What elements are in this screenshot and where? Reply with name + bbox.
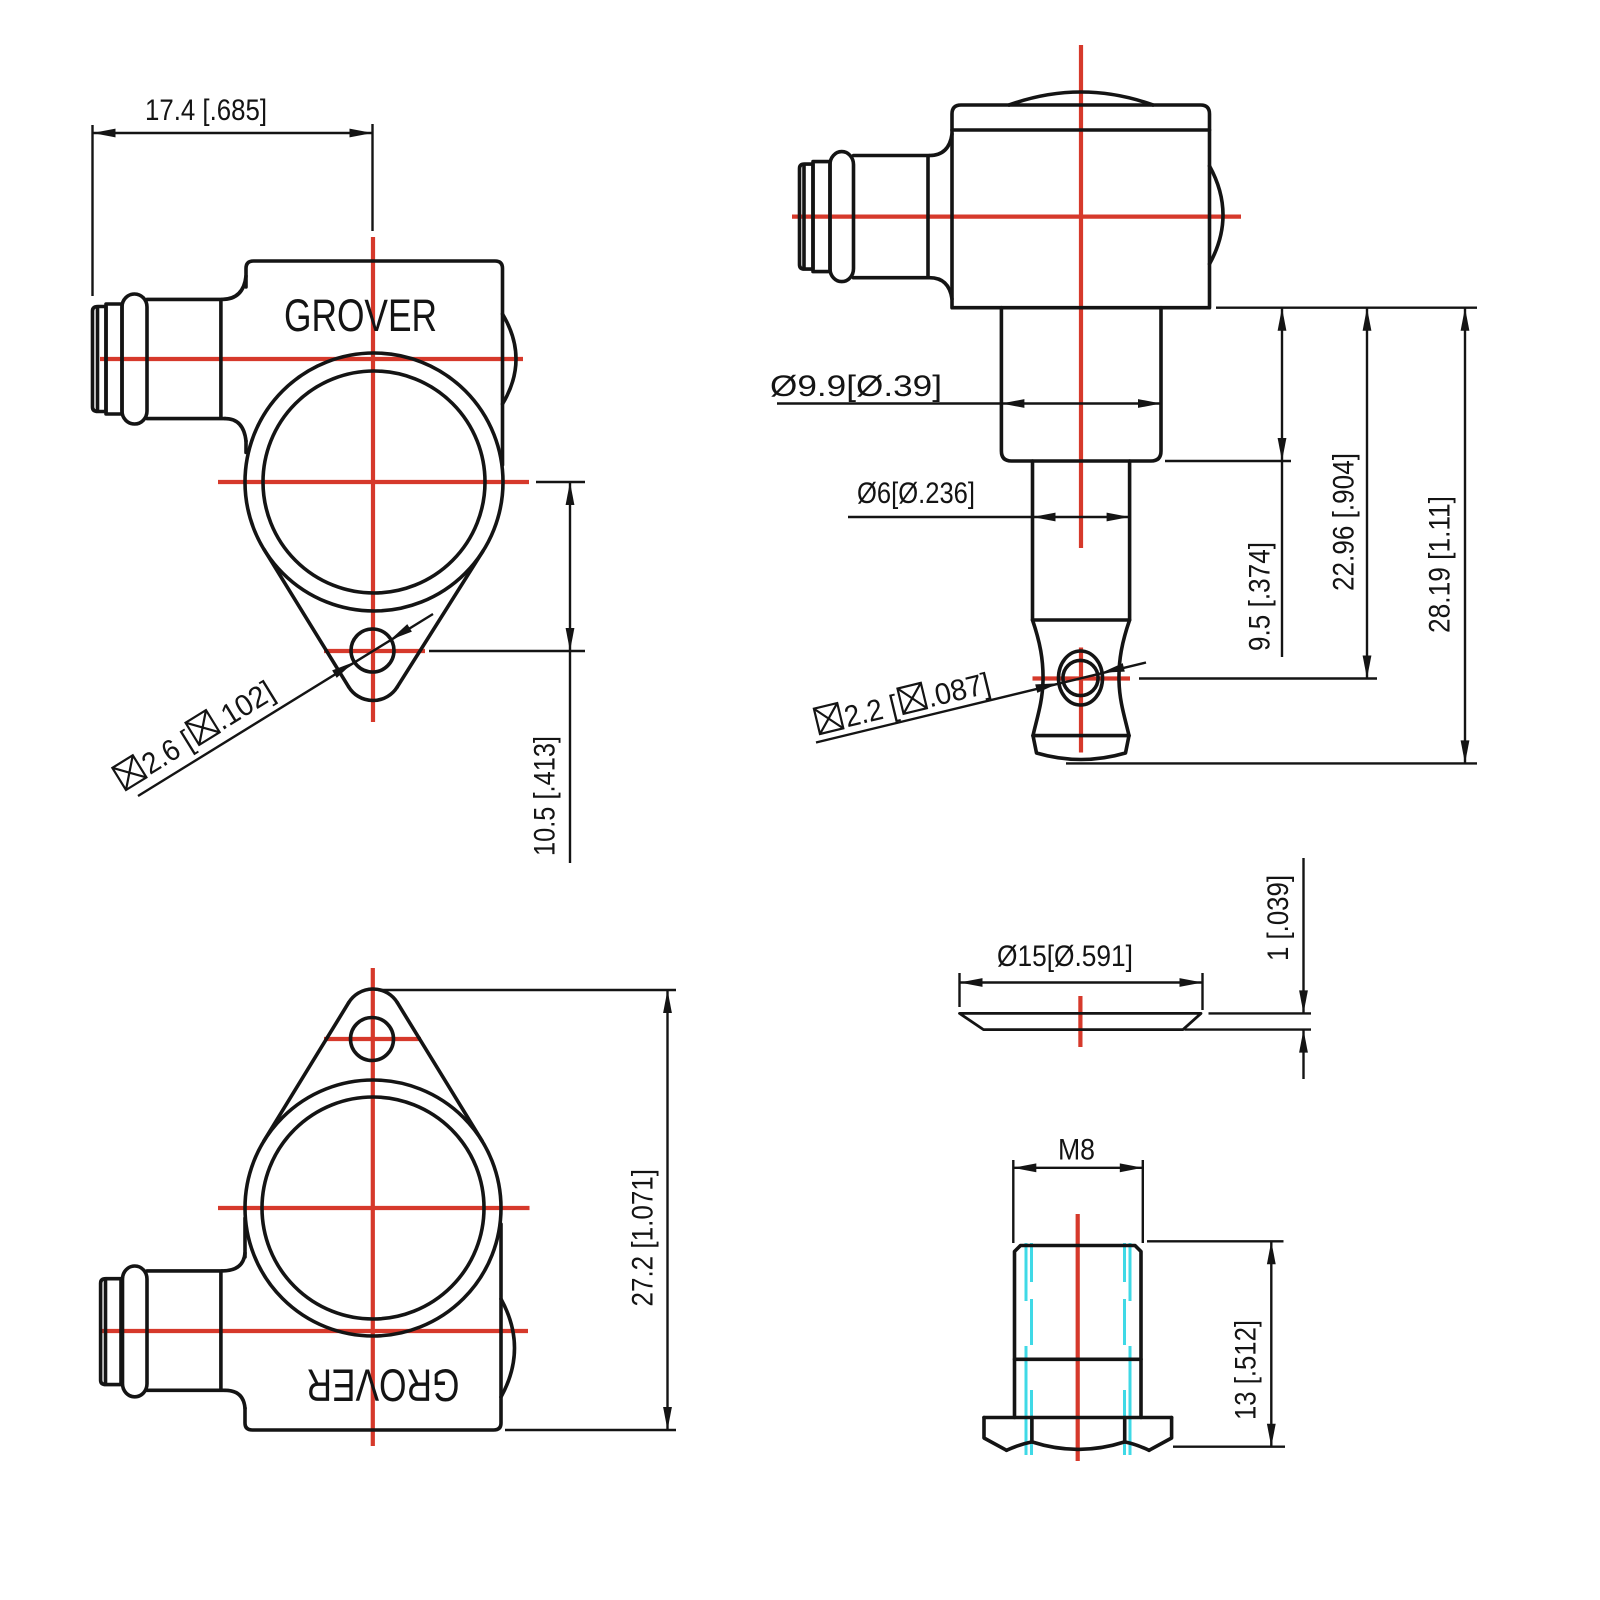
svg-text:13 [.512]: 13 [.512] xyxy=(1230,1320,1263,1420)
svg-text:Ø15[Ø.591]: Ø15[Ø.591] xyxy=(997,940,1133,973)
svg-text:9.5 [.374]: 9.5 [.374] xyxy=(1244,542,1277,651)
svg-text:M8: M8 xyxy=(1058,1134,1095,1167)
svg-text:1 [.039]: 1 [.039] xyxy=(1262,875,1295,961)
svg-text:GROVER: GROVER xyxy=(284,290,437,341)
svg-text:Ø6[Ø.236]: Ø6[Ø.236] xyxy=(857,477,975,510)
svg-text:Ø9.9[Ø.39]: Ø9.9[Ø.39] xyxy=(770,370,942,403)
svg-text:27.2 [1.071]: 27.2 [1.071] xyxy=(627,1169,660,1307)
svg-text:28.19 [1.11]: 28.19 [1.11] xyxy=(1424,496,1457,633)
svg-text:22.96 [.904]: 22.96 [.904] xyxy=(1328,453,1361,591)
svg-text:10.5 [.413]: 10.5 [.413] xyxy=(529,736,562,856)
svg-text:GROVER: GROVER xyxy=(307,1360,460,1411)
svg-text:17.4 [.685]: 17.4 [.685] xyxy=(145,94,267,127)
